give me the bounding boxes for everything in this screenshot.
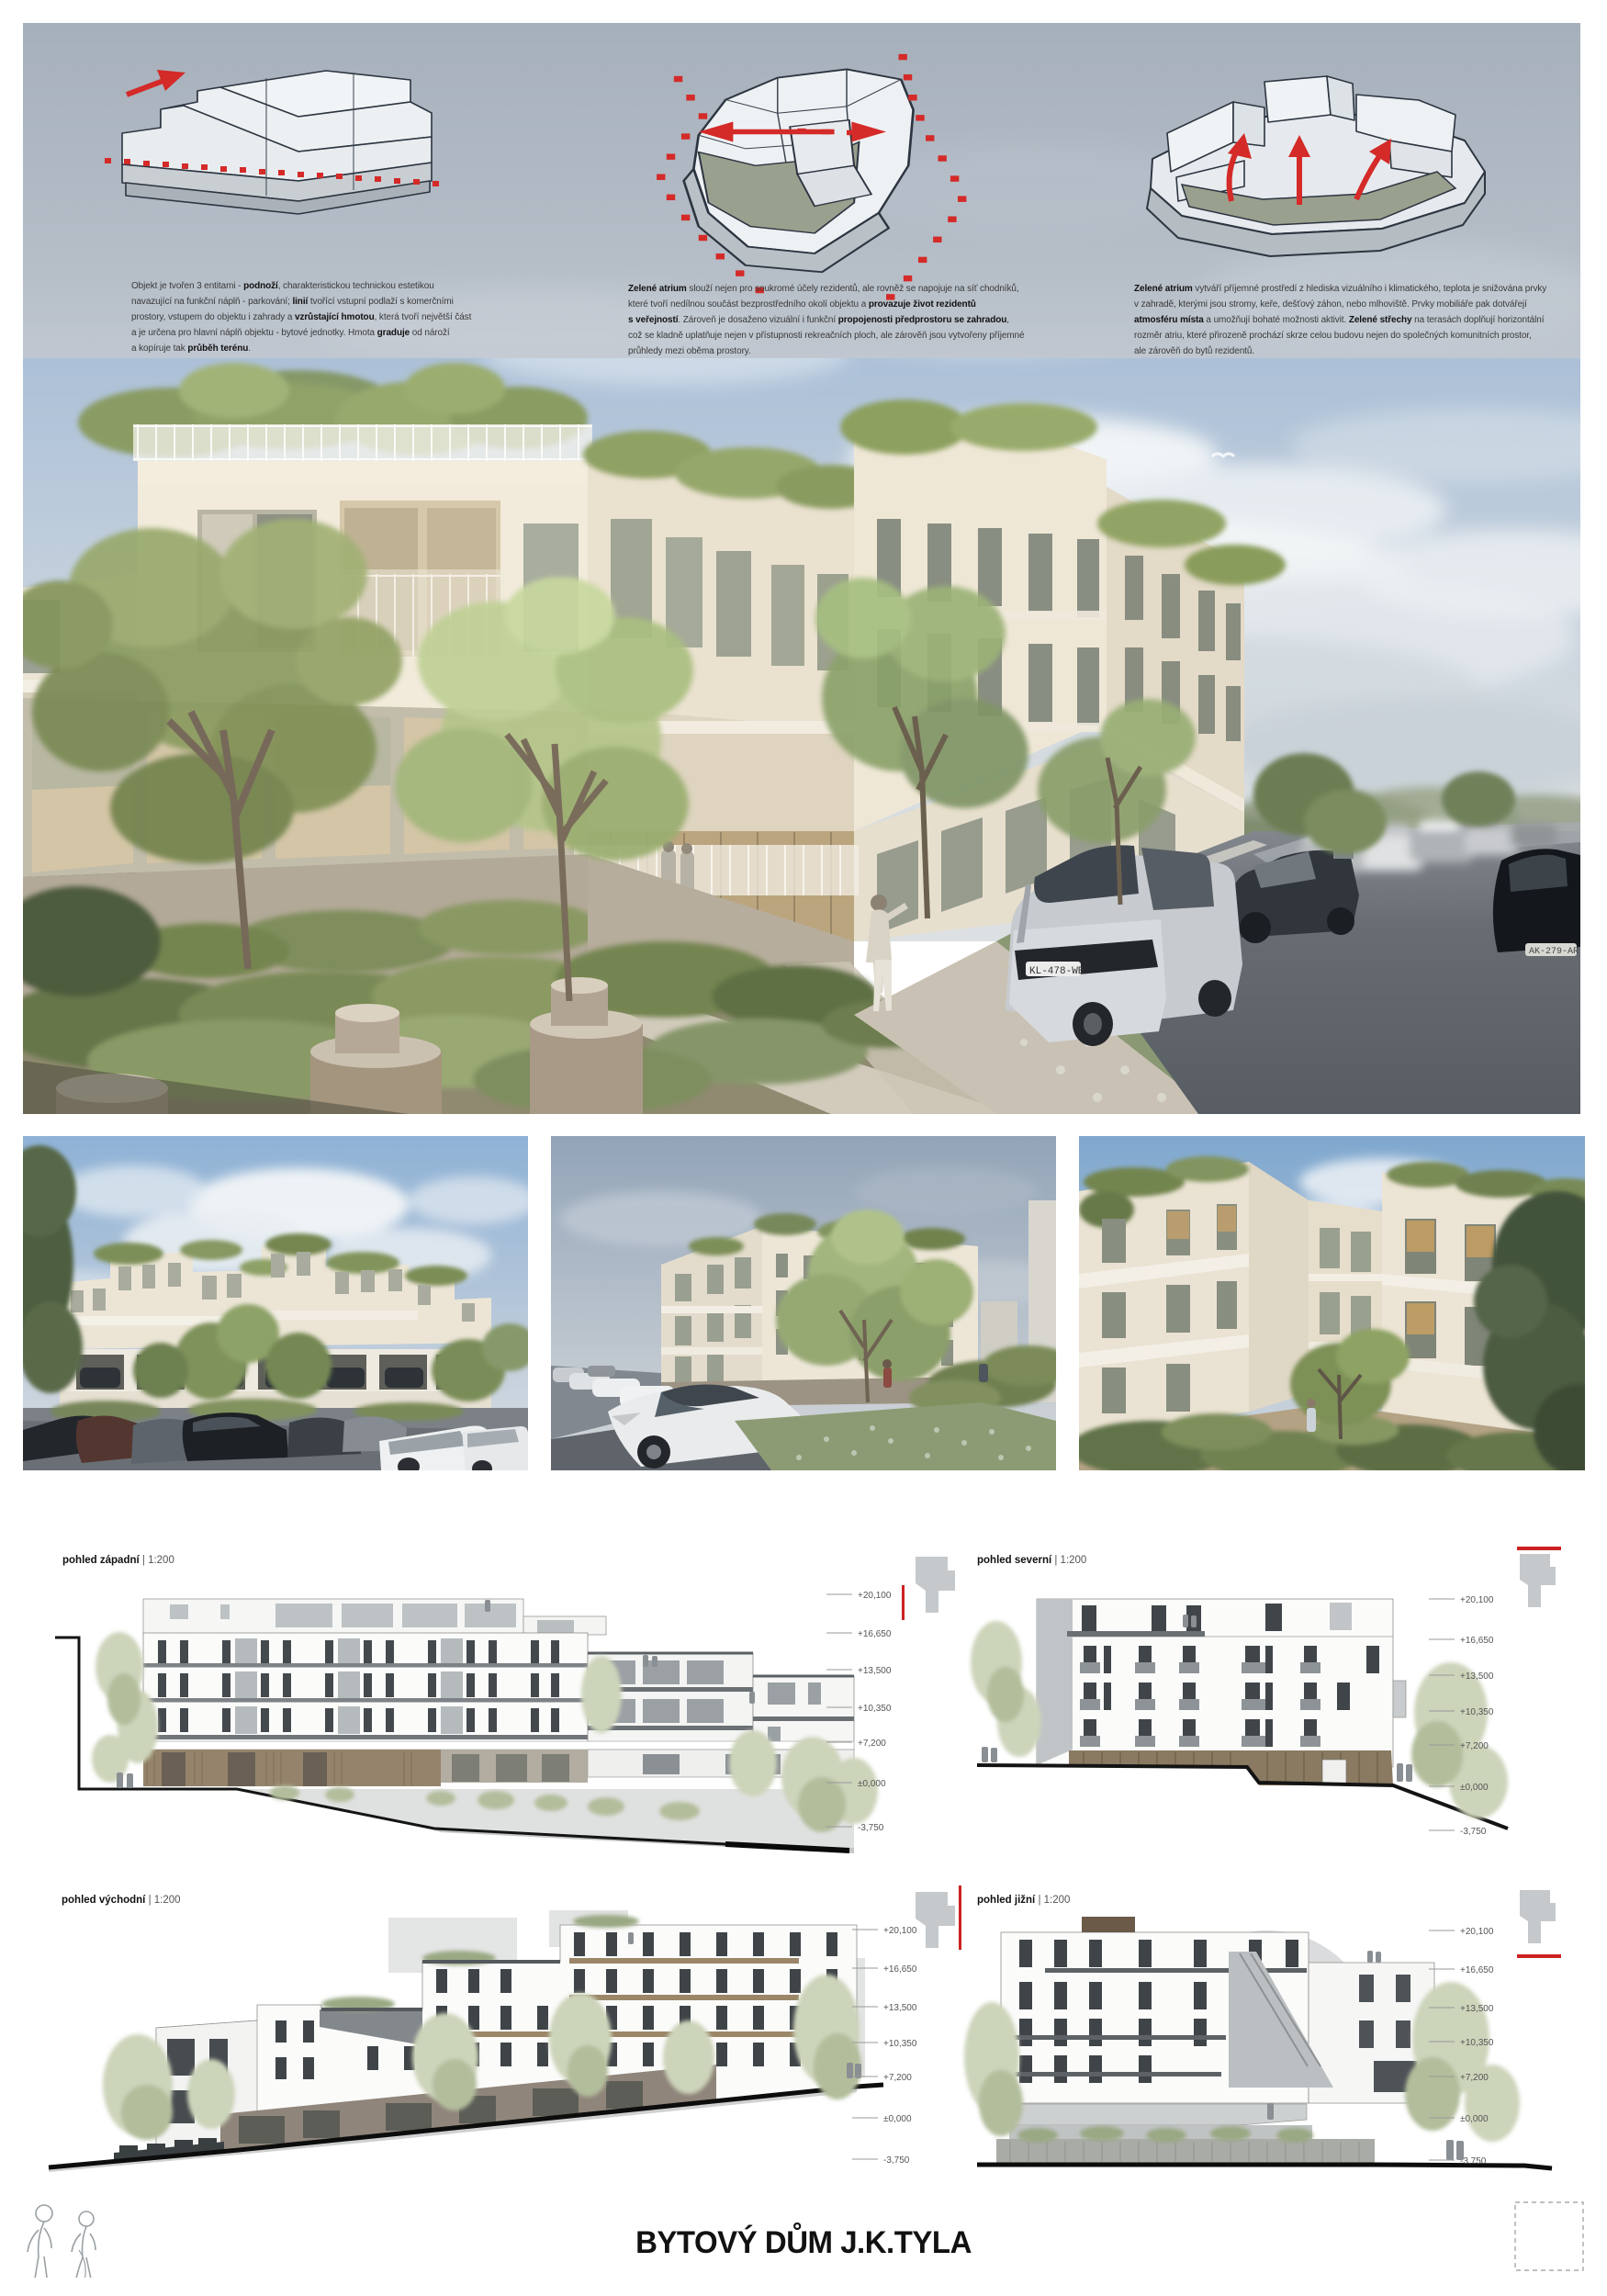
svg-text:+7,200: +7,200	[1460, 2073, 1489, 2083]
svg-text:+7,200: +7,200	[883, 2073, 912, 2083]
svg-text:-3,750: -3,750	[858, 1823, 884, 1833]
svg-text:pohled západní | 1:200: pohled západní | 1:200	[62, 1555, 174, 1566]
svg-text:-3,750: -3,750	[1460, 1827, 1487, 1837]
svg-text:+20,100: +20,100	[858, 1591, 892, 1601]
svg-text:±0,000: ±0,000	[1460, 2114, 1489, 2124]
svg-text:+20,100: +20,100	[883, 1926, 917, 1936]
svg-text:+7,200: +7,200	[858, 1739, 886, 1749]
svg-text:+20,100: +20,100	[1460, 1595, 1494, 1605]
svg-text:+13,500: +13,500	[883, 2003, 917, 2013]
svg-text:KL-478-WB: KL-478-WB	[1029, 966, 1084, 977]
svg-text:-3,750: -3,750	[883, 2155, 910, 2166]
svg-text:pohled severní | 1:200: pohled severní | 1:200	[977, 1555, 1086, 1566]
svg-text:+10,350: +10,350	[1460, 2038, 1494, 2048]
svg-text:+13,500: +13,500	[858, 1666, 892, 1676]
svg-text:+16,650: +16,650	[883, 1964, 917, 1975]
svg-text:-3,750: -3,750	[1460, 2156, 1487, 2167]
svg-text:+10,350: +10,350	[1460, 1707, 1494, 1717]
svg-text:+16,650: +16,650	[858, 1629, 892, 1639]
svg-text:±0,000: ±0,000	[858, 1779, 886, 1789]
svg-text:pohled jižní | 1:200: pohled jižní | 1:200	[977, 1895, 1070, 1906]
svg-text:±0,000: ±0,000	[883, 2114, 912, 2124]
svg-text:+10,350: +10,350	[883, 2039, 917, 2049]
svg-text:+13,500: +13,500	[1460, 2004, 1494, 2014]
svg-text:+16,650: +16,650	[1460, 1965, 1494, 1975]
svg-text:AK-279-AR: AK-279-AR	[1529, 947, 1579, 957]
svg-text:+13,500: +13,500	[1460, 1671, 1494, 1682]
svg-text:+16,650: +16,650	[1460, 1636, 1494, 1646]
svg-text:+20,100: +20,100	[1460, 1927, 1494, 1937]
svg-text:±0,000: ±0,000	[1460, 1783, 1489, 1793]
svg-text:pohled východní | 1:200: pohled východní | 1:200	[62, 1895, 181, 1906]
svg-text:+7,200: +7,200	[1460, 1741, 1489, 1751]
svg-text:+10,350: +10,350	[858, 1704, 892, 1714]
